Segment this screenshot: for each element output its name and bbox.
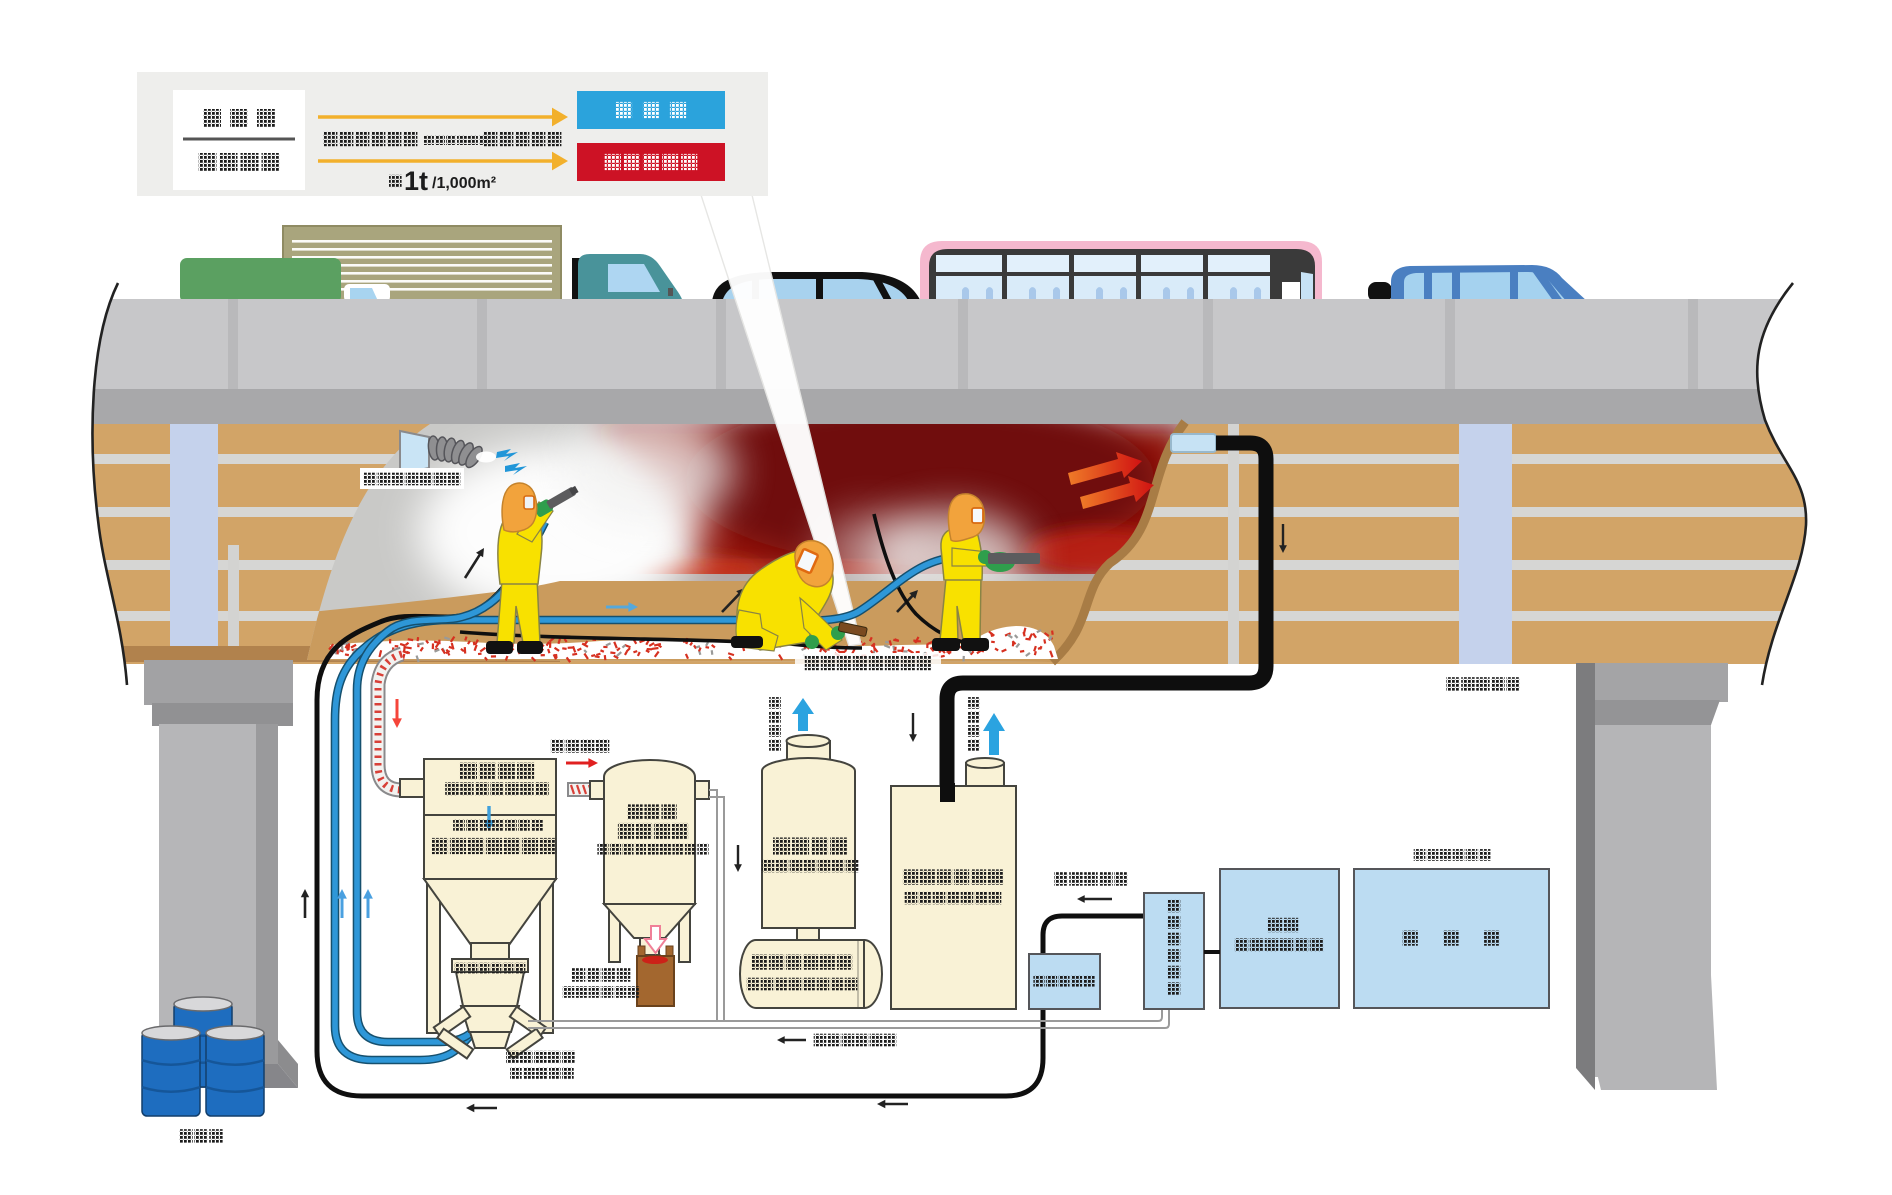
svg-text:/1,000m²: /1,000m² (432, 175, 496, 192)
svg-text:1t: 1t (404, 166, 428, 196)
